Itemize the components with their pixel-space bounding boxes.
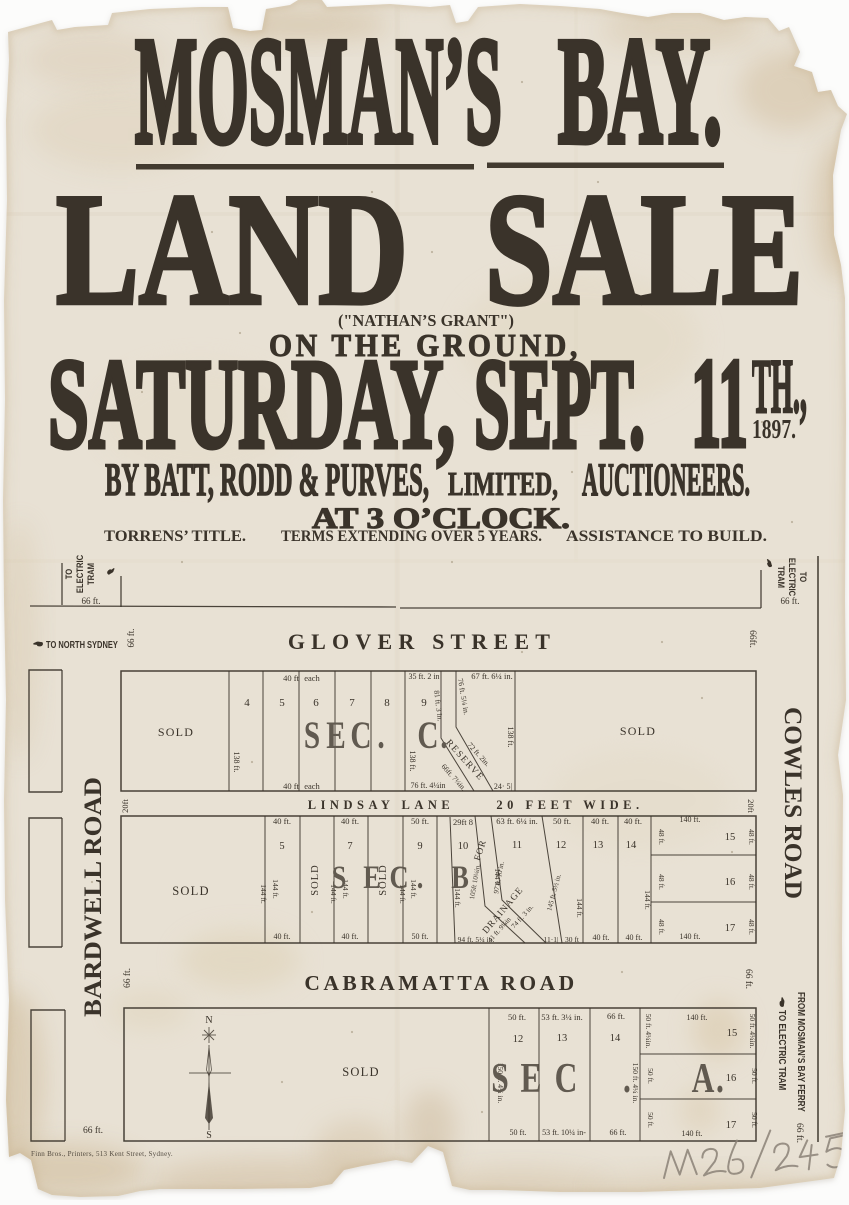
svg-text:TRAM: TRAM xyxy=(776,566,787,588)
svg-text:8: 8 xyxy=(384,697,390,709)
svg-text:140 ft.: 140 ft. xyxy=(680,932,701,941)
svg-text:9: 9 xyxy=(417,841,422,852)
svg-text:10: 10 xyxy=(458,841,469,852)
svg-text:ASSISTANCE TO BUILD.: ASSISTANCE TO BUILD. xyxy=(566,528,767,545)
svg-text:50 ft.: 50 ft. xyxy=(750,1112,759,1128)
svg-text:4: 4 xyxy=(244,697,250,709)
svg-text:140 ft.: 140 ft. xyxy=(682,1129,703,1138)
svg-text:48 ft.: 48 ft. xyxy=(657,829,666,845)
svg-text:A: A xyxy=(692,1056,715,1102)
svg-text:140 ft.: 140 ft. xyxy=(680,815,701,824)
svg-text:C: C xyxy=(389,859,408,895)
svg-text:BY BATT, RODD & PURVES,: BY BATT, RODD & PURVES, xyxy=(105,454,429,506)
svg-text:40 ft.: 40 ft. xyxy=(341,816,359,826)
svg-text:SOLD: SOLD xyxy=(620,724,656,738)
svg-text:66 ft.: 66 ft. xyxy=(794,1123,805,1143)
svg-text:140 ft.: 140 ft. xyxy=(687,1013,708,1022)
svg-text:SOLD: SOLD xyxy=(310,864,321,895)
svg-text:144 ft.: 144 ft. xyxy=(259,884,268,904)
svg-text:LINDSAY LANE: LINDSAY LANE xyxy=(308,798,455,812)
svg-text:15: 15 xyxy=(727,1028,738,1039)
svg-text:40 ft: 40 ft xyxy=(283,673,299,683)
svg-text:53 ft. 3¼ in.: 53 ft. 3¼ in. xyxy=(541,1012,583,1022)
svg-text:144 ft.: 144 ft. xyxy=(271,879,280,899)
svg-text:B: B xyxy=(451,859,469,895)
svg-text:66 ft.: 66 ft. xyxy=(781,596,800,606)
svg-text:50 ft.: 50 ft. xyxy=(750,1068,759,1084)
svg-text:S: S xyxy=(332,859,347,895)
svg-text:150 ft. 4¼ in.: 150 ft. 4¼ in. xyxy=(631,1063,640,1104)
svg-text:144 ft.: 144 ft. xyxy=(643,890,652,910)
svg-text:50 ft.: 50 ft. xyxy=(646,1068,655,1084)
svg-text:11: 11 xyxy=(512,840,522,851)
svg-text:7: 7 xyxy=(347,841,352,852)
svg-text:50 ft.: 50 ft. xyxy=(411,816,429,826)
svg-text:SOLD: SOLD xyxy=(342,1065,379,1079)
svg-text:GLOVER STREET: GLOVER STREET xyxy=(288,629,556,654)
svg-text:40 ft.: 40 ft. xyxy=(626,933,643,942)
svg-text:14: 14 xyxy=(626,840,637,851)
svg-text:E: E xyxy=(520,1056,541,1102)
svg-text:.: . xyxy=(716,1056,724,1102)
svg-text:66ft.: 66ft. xyxy=(747,630,758,648)
svg-text:20ft: 20ft xyxy=(746,799,756,813)
svg-text:5: 5 xyxy=(279,841,284,852)
svg-text:48 ft.: 48 ft. xyxy=(657,874,666,890)
svg-text:50 ft.: 50 ft. xyxy=(553,816,571,826)
svg-text:TERMS EXTENDING OVER 5 YEARS.: TERMS EXTENDING OVER 5 YEARS. xyxy=(281,528,542,545)
svg-text:17: 17 xyxy=(725,923,736,934)
svg-text:66 ft.: 66 ft. xyxy=(607,1011,625,1021)
svg-text:TORRENS’ TITLE.: TORRENS’ TITLE. xyxy=(104,528,246,545)
svg-text:40 ft: 40 ft xyxy=(283,781,299,791)
svg-text:50 ft.: 50 ft. xyxy=(412,932,429,941)
svg-text:40 ft.: 40 ft. xyxy=(591,816,609,826)
svg-text:48 ft.: 48 ft. xyxy=(747,874,756,890)
svg-text:30 ft: 30 ft xyxy=(565,935,580,944)
svg-text:MOSMAN’S: MOSMAN’S xyxy=(135,7,502,176)
svg-text:15: 15 xyxy=(725,832,736,843)
svg-text:50 ft. 4¼in.: 50 ft. 4¼in. xyxy=(748,1014,757,1049)
svg-text:TRAM: TRAM xyxy=(85,563,96,585)
svg-text:16: 16 xyxy=(726,1073,737,1084)
svg-text:16: 16 xyxy=(725,877,736,888)
svg-text:TO ELECTRIC TRAM: TO ELECTRIC TRAM xyxy=(777,1010,788,1090)
svg-text:C: C xyxy=(417,714,438,757)
svg-text:66 ft.: 66 ft. xyxy=(82,596,101,606)
svg-text:48 ft.: 48 ft. xyxy=(657,919,666,935)
svg-text:40 ft.: 40 ft. xyxy=(342,932,359,941)
svg-text:29ft 8: 29ft 8 xyxy=(453,817,473,827)
svg-text:each: each xyxy=(304,673,320,683)
svg-text:TO NORTH SYDNEY: TO NORTH SYDNEY xyxy=(46,639,118,650)
svg-text:5: 5 xyxy=(279,697,285,709)
svg-text:SOLD: SOLD xyxy=(172,884,209,898)
svg-text:C: C xyxy=(350,714,371,757)
svg-text:138 ft.: 138 ft. xyxy=(408,751,417,772)
svg-text:66 ft.: 66 ft. xyxy=(126,629,136,648)
svg-text:BARDWELL ROAD: BARDWELL ROAD xyxy=(80,777,107,1017)
svg-text:LIMITED,: LIMITED, xyxy=(448,466,558,503)
svg-text:each: each xyxy=(304,781,320,791)
svg-text:COWLES ROAD: COWLES ROAD xyxy=(779,707,806,899)
svg-text:1897.: 1897. xyxy=(752,414,796,444)
svg-text:50 ft.: 50 ft. xyxy=(646,1112,655,1128)
svg-text:48 ft.: 48 ft. xyxy=(747,919,756,935)
svg-text:13: 13 xyxy=(593,840,604,851)
svg-text:66 ft.: 66 ft. xyxy=(743,969,754,989)
svg-text:40 ft.: 40 ft. xyxy=(274,932,291,941)
svg-text:53 ft. 10¼ in-: 53 ft. 10¼ in- xyxy=(542,1128,586,1137)
svg-text:9: 9 xyxy=(421,697,427,709)
svg-text:40 ft.: 40 ft. xyxy=(273,816,291,826)
svg-text:138 ft.: 138 ft. xyxy=(506,727,515,748)
svg-text:CABRAMATTA ROAD: CABRAMATTA ROAD xyxy=(304,971,577,995)
svg-text:E: E xyxy=(326,714,346,757)
svg-text:12: 12 xyxy=(556,840,567,851)
svg-text:7: 7 xyxy=(349,697,355,709)
svg-text:24· 5|: 24· 5| xyxy=(494,782,512,791)
svg-text:40 ft.: 40 ft. xyxy=(593,933,610,942)
svg-text:12: 12 xyxy=(513,1034,524,1045)
svg-text:ELECTRIC: ELECTRIC xyxy=(74,555,85,593)
svg-text:N: N xyxy=(205,1015,212,1026)
svg-text:63 ft. 6¼ in.: 63 ft. 6¼ in. xyxy=(496,816,538,826)
svg-text:50 ft.: 50 ft. xyxy=(508,1012,526,1022)
svg-text:.: . xyxy=(440,714,447,757)
svg-text:11: 11 xyxy=(691,332,748,474)
svg-text:E: E xyxy=(363,859,381,895)
svg-text:48 ft.: 48 ft. xyxy=(747,829,756,845)
svg-text:.: . xyxy=(623,1056,631,1102)
svg-text:S: S xyxy=(304,714,320,757)
svg-text:11·1|: 11·1| xyxy=(544,935,559,944)
svg-text:67 ft. 6¼ in.: 67 ft. 6¼ in. xyxy=(471,671,513,681)
svg-text:TO: TO xyxy=(63,568,74,579)
svg-text:.: . xyxy=(377,714,384,757)
svg-text:138 ft.: 138 ft. xyxy=(232,752,241,773)
svg-text:20ft: 20ft xyxy=(120,799,130,813)
svg-text:BAY.: BAY. xyxy=(558,7,722,176)
svg-text:TO: TO xyxy=(798,572,809,583)
svg-text:66 ft.: 66 ft. xyxy=(610,1128,627,1137)
svg-text:SOLD: SOLD xyxy=(158,725,194,739)
svg-text:AUCTIONEERS.: AUCTIONEERS. xyxy=(582,454,750,506)
svg-text:6: 6 xyxy=(313,697,319,709)
svg-text:C: C xyxy=(555,1056,578,1102)
svg-text:76 ft. 4¼in: 76 ft. 4¼in xyxy=(410,781,445,790)
svg-text:66 ft.: 66 ft. xyxy=(122,968,133,988)
svg-text:144 ft.: 144 ft. xyxy=(575,898,584,918)
svg-text:50 ft. 4¼in.: 50 ft. 4¼in. xyxy=(644,1014,653,1049)
svg-text:SALE: SALE xyxy=(485,160,803,338)
svg-text:Finn Bros., Printers, 513 Kent: Finn Bros., Printers, 513 Kent Street, S… xyxy=(31,1150,173,1158)
svg-text:.: . xyxy=(417,859,424,895)
svg-text:50 ft.: 50 ft. xyxy=(510,1128,527,1137)
svg-text:S: S xyxy=(491,1056,509,1102)
svg-text:35 ft. 2 in: 35 ft. 2 in xyxy=(408,672,439,681)
svg-text:20 FEET WIDE.: 20 FEET WIDE. xyxy=(496,798,643,812)
svg-text:S: S xyxy=(206,1130,212,1141)
svg-text:40 ft.: 40 ft. xyxy=(624,816,642,826)
svg-text:13: 13 xyxy=(557,1033,568,1044)
svg-text:ELECTRIC: ELECTRIC xyxy=(787,558,798,596)
svg-text:17: 17 xyxy=(726,1120,737,1131)
svg-text:66 ft.: 66 ft. xyxy=(83,1125,103,1136)
svg-text:FROM MOSMAN’S BAY FERRY: FROM MOSMAN’S BAY FERRY xyxy=(796,992,807,1112)
svg-text:14: 14 xyxy=(610,1033,621,1044)
